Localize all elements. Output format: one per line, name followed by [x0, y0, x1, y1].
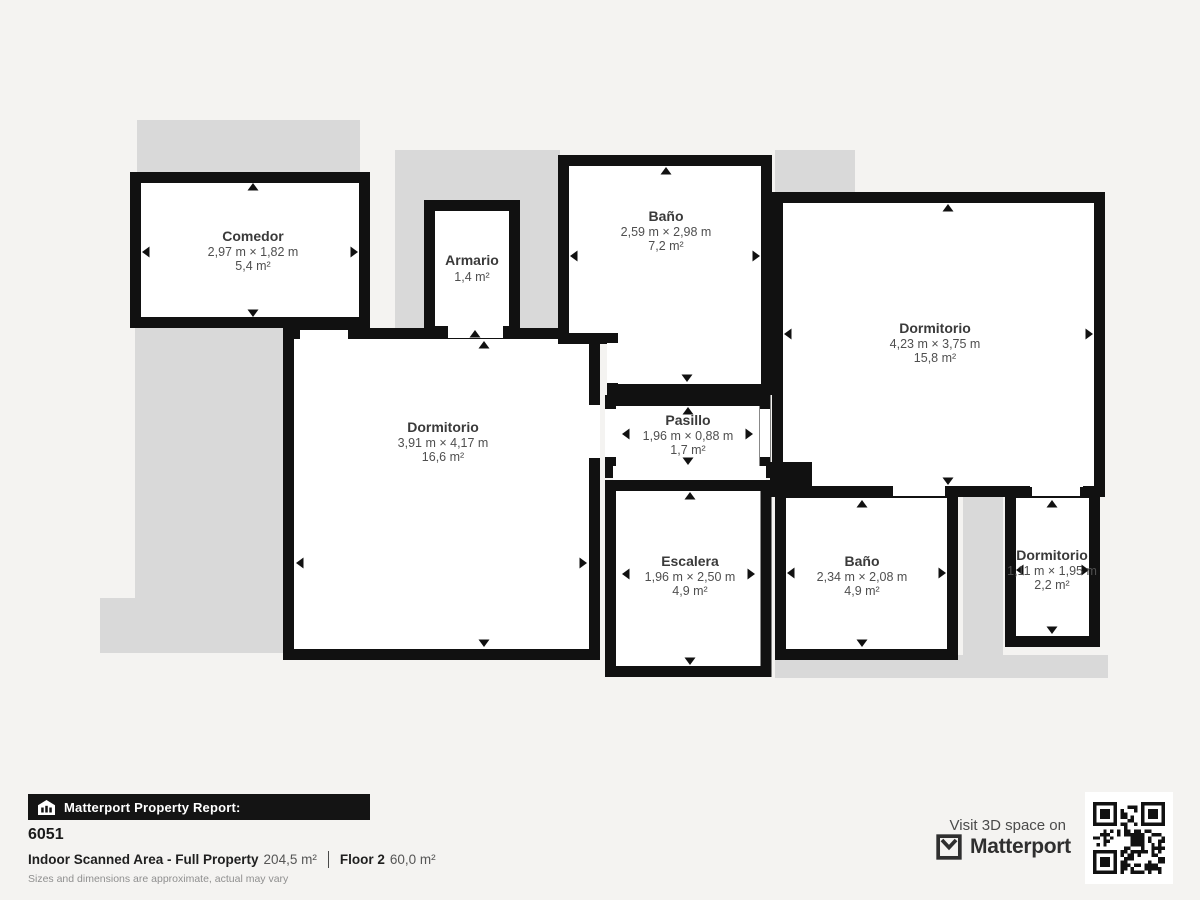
- room-dims: 2,34 m × 2,08 m: [817, 570, 908, 584]
- room-name: Baño: [845, 553, 880, 569]
- room-name: Armario: [445, 252, 499, 268]
- floor-label: Floor 2: [340, 852, 385, 867]
- room-area: 16,6 m²: [422, 450, 464, 464]
- room-area: 5,4 m²: [235, 259, 270, 273]
- qr-code: [1085, 792, 1173, 884]
- matterport-logo: Matterport: [936, 834, 1071, 860]
- report-banner-label: Matterport Property Report:: [64, 800, 241, 815]
- floor-plan: Comedor 2,97 m × 1,82 m 5,4 m² Armario 1…: [0, 0, 1200, 770]
- visit-3d-label: Visit 3D space on: [860, 817, 1066, 834]
- property-id: 6051: [28, 826, 64, 844]
- matterport-wordmark: Matterport: [970, 835, 1071, 859]
- room-area: 7,2 m²: [648, 239, 683, 253]
- report-banner: Matterport Property Report:: [28, 794, 370, 820]
- room-name: Escalera: [661, 553, 719, 569]
- room-dims: 1,96 m × 2,50 m: [645, 570, 736, 584]
- room-area: 1,7 m²: [670, 443, 705, 457]
- room-dims: 3,91 m × 4,17 m: [398, 436, 489, 450]
- room-area: 4,9 m²: [844, 584, 879, 598]
- room-name: Dormitorio: [407, 419, 479, 435]
- qr-code-pattern: [1093, 802, 1165, 874]
- room-area: 4,9 m²: [672, 584, 707, 598]
- room-name: Comedor: [222, 228, 284, 244]
- scanned-area-value: 204,5 m²: [264, 852, 317, 867]
- scanned-area-label: Indoor Scanned Area - Full Property: [28, 852, 259, 867]
- floor-value: 60,0 m²: [390, 852, 436, 867]
- room-name: Pasillo: [665, 412, 710, 428]
- house-scan-icon: [38, 800, 55, 815]
- room-dormitorio-left: [289, 330, 601, 655]
- room-dims: 4,23 m × 3,75 m: [890, 337, 981, 351]
- room-dims: 2,97 m × 1,82 m: [208, 245, 299, 259]
- room-name: Baño: [649, 208, 684, 224]
- divider: [328, 851, 329, 868]
- room-area: 2,2 m²: [1034, 578, 1069, 592]
- room-name: Dormitorio: [899, 320, 971, 336]
- room-name: Dormitorio: [1016, 547, 1088, 563]
- room-area: 15,8 m²: [914, 351, 956, 365]
- disclaimer-text: Sizes and dimensions are approximate, ac…: [28, 873, 288, 885]
- area-summary: Indoor Scanned Area - Full Property 204,…: [28, 851, 436, 868]
- room-dims: 1,11 m × 1,95 m: [1007, 564, 1097, 578]
- room-dims: 2,59 m × 2,98 m: [621, 225, 712, 239]
- matterport-logo-icon: [936, 834, 962, 860]
- property-report-page: Comedor 2,97 m × 1,82 m 5,4 m² Armario 1…: [0, 0, 1200, 900]
- room-dims: 1,96 m × 0,88 m: [643, 429, 734, 443]
- room-area: 1,4 m²: [454, 270, 489, 284]
